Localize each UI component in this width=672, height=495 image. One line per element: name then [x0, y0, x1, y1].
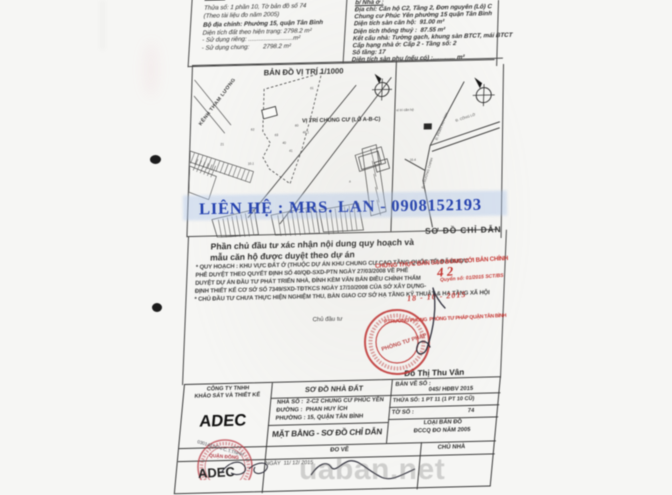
- svg-text:60: 60: [295, 124, 299, 128]
- svg-text:40: 40: [282, 141, 286, 145]
- svg-text:KÊNH THAM LƯƠNG: KÊNH THAM LƯƠNG: [196, 76, 237, 127]
- svg-text:40.1: 40.1: [303, 130, 310, 134]
- svg-text:41: 41: [289, 149, 293, 153]
- svg-text:a: a: [349, 179, 351, 183]
- svg-text:61: 61: [310, 86, 314, 90]
- svg-text:10.4: 10.4: [410, 158, 417, 162]
- svg-text:Đ. CỐNG LỞ: Đ. CỐNG LỞ: [455, 112, 476, 123]
- svg-text:21: 21: [220, 142, 224, 146]
- svg-text:vị trí căn hộ: vị trí căn hộ: [396, 108, 414, 112]
- svg-text:VỊ TRÍ CHUNG CƯ (LÔ A-B-C): VỊ TRÍ CHUNG CƯ (LÔ A-B-C): [302, 115, 381, 125]
- svg-text:63: 63: [275, 133, 279, 137]
- svg-text:62: 62: [251, 128, 255, 132]
- svg-text:Đ. PHAN HUY ÍCH: Đ. PHAN HUY ÍCH: [435, 112, 450, 141]
- svg-text:10.1: 10.1: [248, 162, 255, 166]
